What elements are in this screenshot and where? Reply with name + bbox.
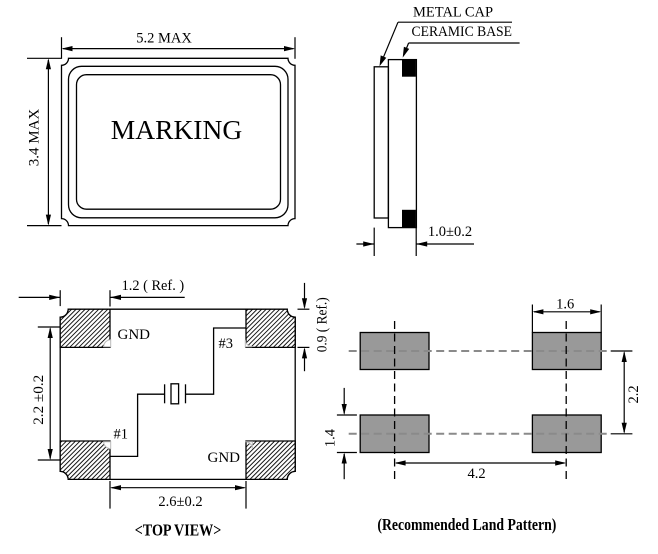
svg-text:MARKING: MARKING	[111, 114, 242, 145]
svg-text:GND: GND	[208, 450, 241, 466]
svg-text:#1: #1	[114, 427, 129, 443]
svg-text:1.4: 1.4	[323, 428, 339, 447]
svg-text:1.6: 1.6	[556, 297, 574, 313]
svg-text:2.2 ±0.2: 2.2 ±0.2	[31, 375, 47, 425]
svg-text:1.0±0.2: 1.0±0.2	[428, 224, 472, 240]
svg-text:4.2: 4.2	[467, 466, 485, 482]
svg-text:2.2: 2.2	[626, 385, 642, 403]
svg-text:<TOP VIEW>: <TOP VIEW>	[135, 521, 222, 540]
svg-text:3.4 MAX: 3.4 MAX	[26, 109, 42, 167]
svg-text:#3: #3	[219, 336, 234, 352]
svg-text:2.6±0.2: 2.6±0.2	[158, 494, 202, 510]
svg-text:CERAMIC BASE: CERAMIC BASE	[412, 24, 513, 40]
svg-text:0.9 ( Ref.): 0.9 ( Ref.)	[315, 297, 331, 352]
svg-text:GND: GND	[118, 327, 151, 343]
svg-text:1.2 ( Ref. ): 1.2 ( Ref. )	[122, 278, 185, 294]
svg-text:METAL CAP: METAL CAP	[413, 5, 493, 21]
svg-text:(Recommended Land Pattern): (Recommended Land Pattern)	[377, 515, 556, 534]
svg-text:5.2 MAX: 5.2 MAX	[136, 31, 192, 47]
